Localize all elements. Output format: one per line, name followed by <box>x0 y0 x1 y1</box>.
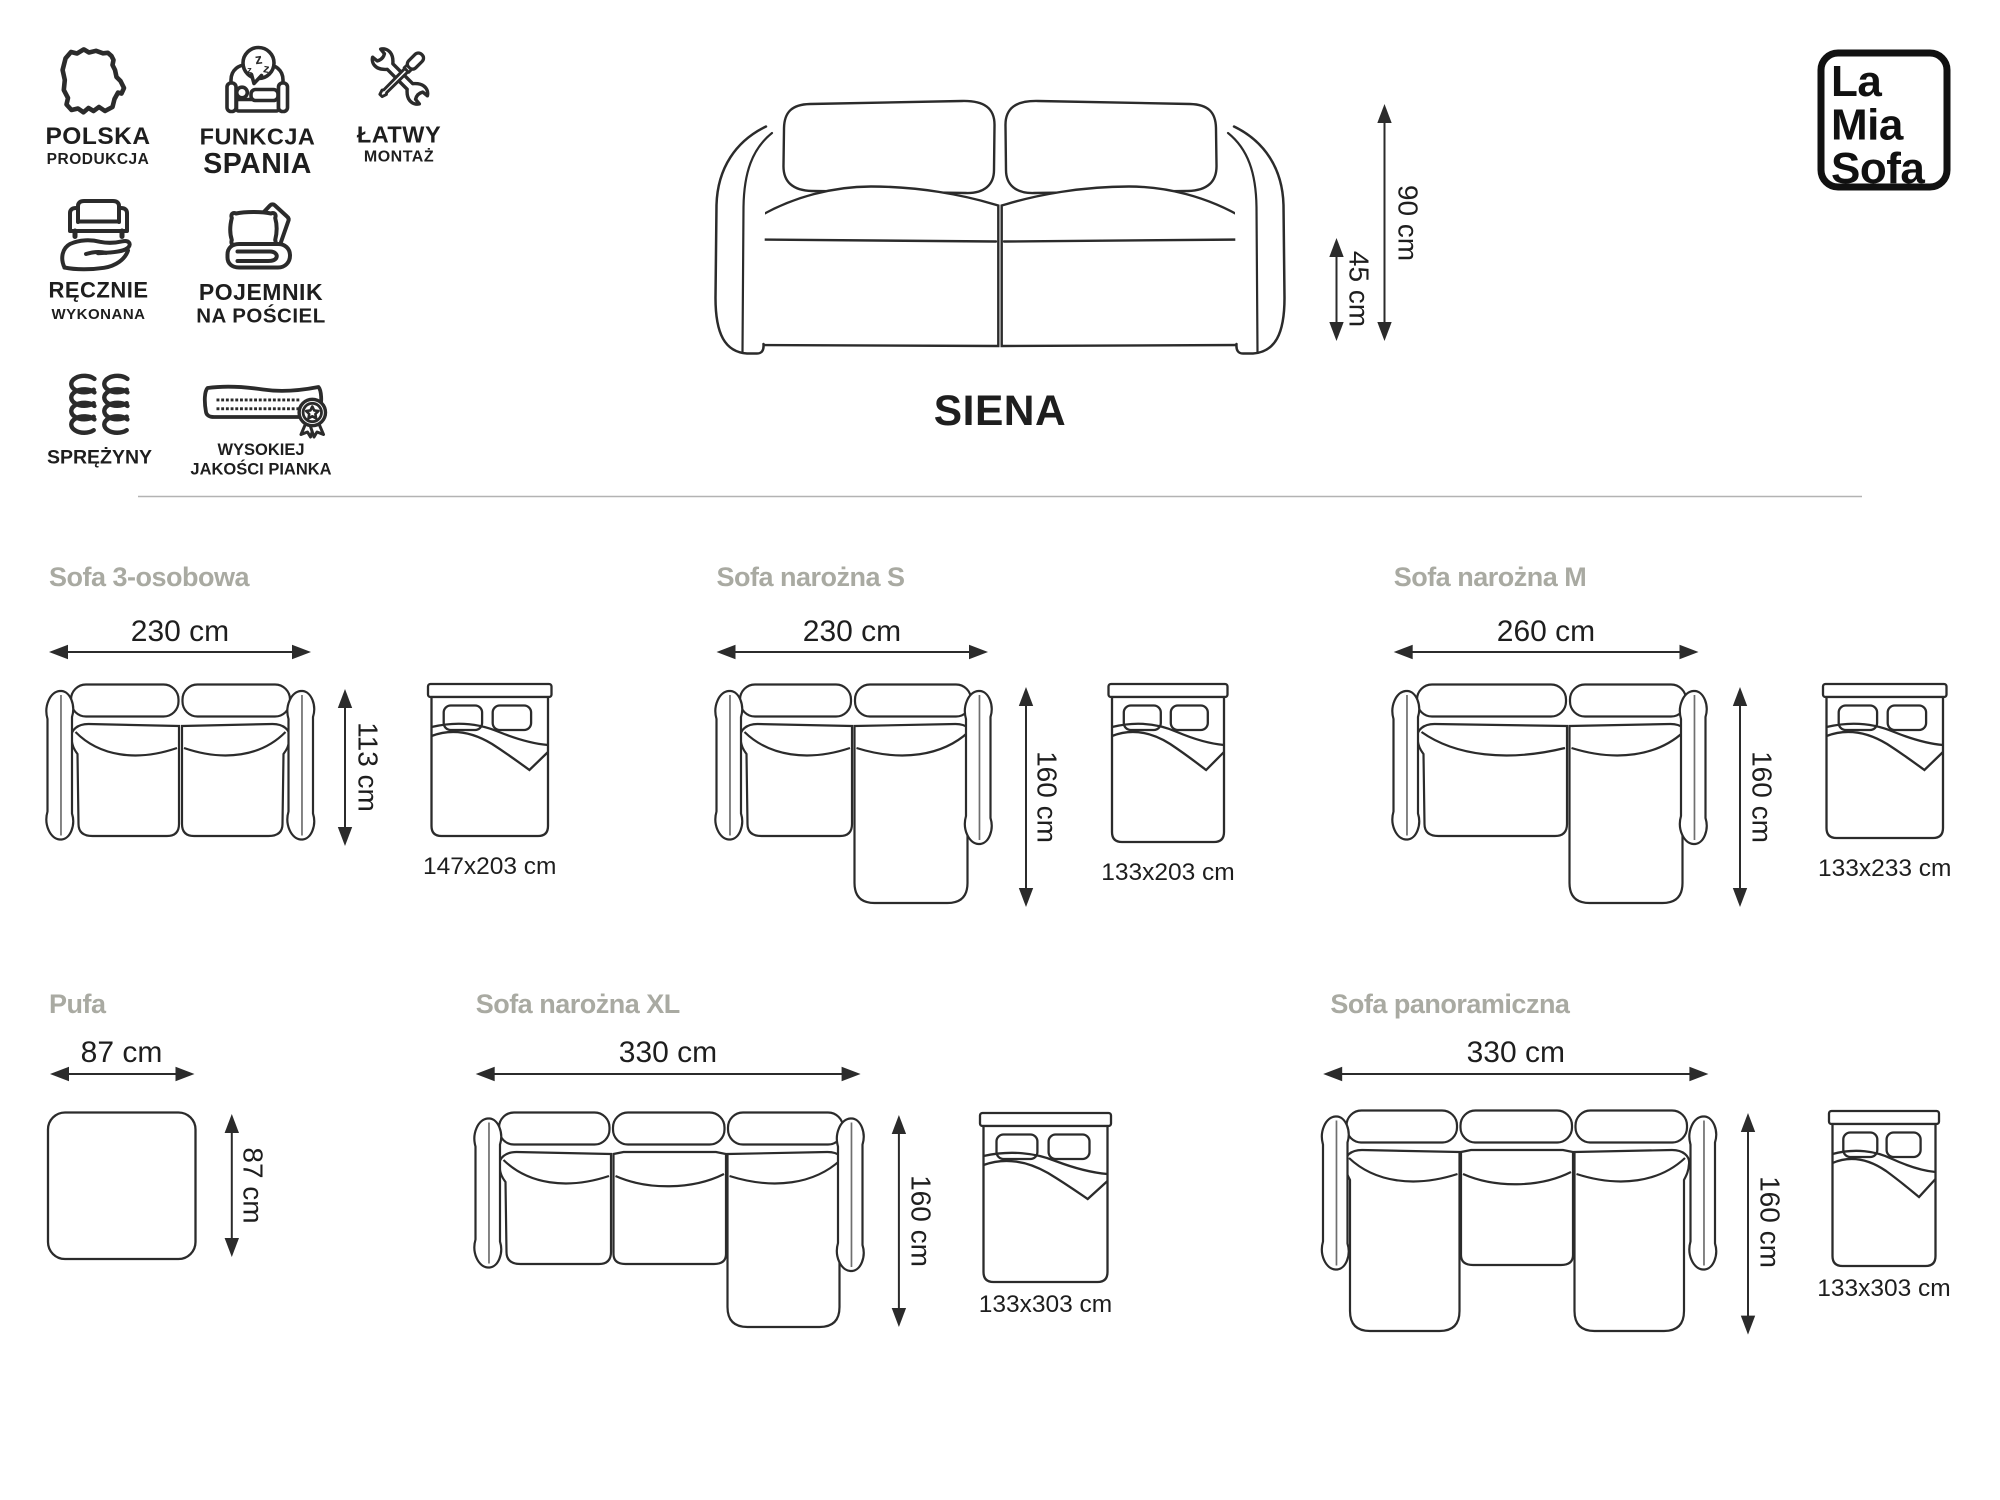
svg-text:POJEMNIK: POJEMNIK <box>199 279 323 305</box>
svg-text:SPANIA: SPANIA <box>203 148 312 180</box>
svg-text:160 cm: 160 cm <box>1032 751 1063 843</box>
svg-text:133x203 cm: 133x203 cm <box>1101 859 1234 886</box>
svg-text:Sofa panoramiczna: Sofa panoramiczna <box>1330 989 1571 1019</box>
svg-text:WYKONANA: WYKONANA <box>52 306 146 323</box>
svg-text:JAKOŚCI PIANKA: JAKOŚCI PIANKA <box>190 460 331 479</box>
svg-text:90 cm: 90 cm <box>1393 185 1424 261</box>
svg-text:SIENA: SIENA <box>934 388 1066 435</box>
svg-text:160 cm: 160 cm <box>906 1175 937 1267</box>
svg-text:FUNKCJA: FUNKCJA <box>200 124 316 150</box>
svg-text:Sofa: Sofa <box>1831 144 1925 193</box>
svg-text:133x233 cm: 133x233 cm <box>1818 855 1951 882</box>
svg-text:WYSOKIEJ: WYSOKIEJ <box>217 441 304 459</box>
svg-text:133x303 cm: 133x303 cm <box>1817 1275 1950 1302</box>
svg-text:230 cm: 230 cm <box>131 615 229 648</box>
svg-text:147x203 cm: 147x203 cm <box>423 853 556 880</box>
svg-text:330 cm: 330 cm <box>619 1036 717 1069</box>
svg-text:RĘCZNIE: RĘCZNIE <box>48 278 148 303</box>
svg-text:Mia: Mia <box>1831 101 1904 150</box>
svg-text:330 cm: 330 cm <box>1467 1036 1565 1069</box>
svg-text:Sofa narożna M: Sofa narożna M <box>1394 562 1587 592</box>
svg-text:PRODUKCJA: PRODUKCJA <box>47 151 150 168</box>
svg-text:SPRĘŻYNY: SPRĘŻYNY <box>47 446 152 469</box>
svg-text:87 cm: 87 cm <box>238 1147 269 1223</box>
svg-text:45 cm: 45 cm <box>1344 251 1375 327</box>
svg-text:113 cm: 113 cm <box>353 722 384 812</box>
svg-text:NA POŚCIEL: NA POŚCIEL <box>196 304 326 328</box>
svg-text:La: La <box>1831 57 1882 106</box>
svg-text:MONTAŻ: MONTAŻ <box>364 148 434 166</box>
svg-text:160 cm: 160 cm <box>1747 751 1778 843</box>
svg-text:160 cm: 160 cm <box>1755 1176 1786 1268</box>
svg-text:ŁATWY: ŁATWY <box>357 122 441 148</box>
svg-text:Sofa narożna XL: Sofa narożna XL <box>476 989 680 1019</box>
svg-text:Pufa: Pufa <box>49 989 107 1019</box>
svg-text:230 cm: 230 cm <box>803 615 901 648</box>
svg-text:87 cm: 87 cm <box>81 1036 163 1069</box>
svg-text:POLSKA: POLSKA <box>45 123 150 150</box>
svg-text:Sofa narożna S: Sofa narożna S <box>717 562 905 592</box>
svg-text:z: z <box>247 65 252 76</box>
svg-text:133x303 cm: 133x303 cm <box>979 1291 1112 1318</box>
svg-text:Sofa 3-osobowa: Sofa 3-osobowa <box>49 562 251 592</box>
svg-text:260 cm: 260 cm <box>1497 615 1595 648</box>
